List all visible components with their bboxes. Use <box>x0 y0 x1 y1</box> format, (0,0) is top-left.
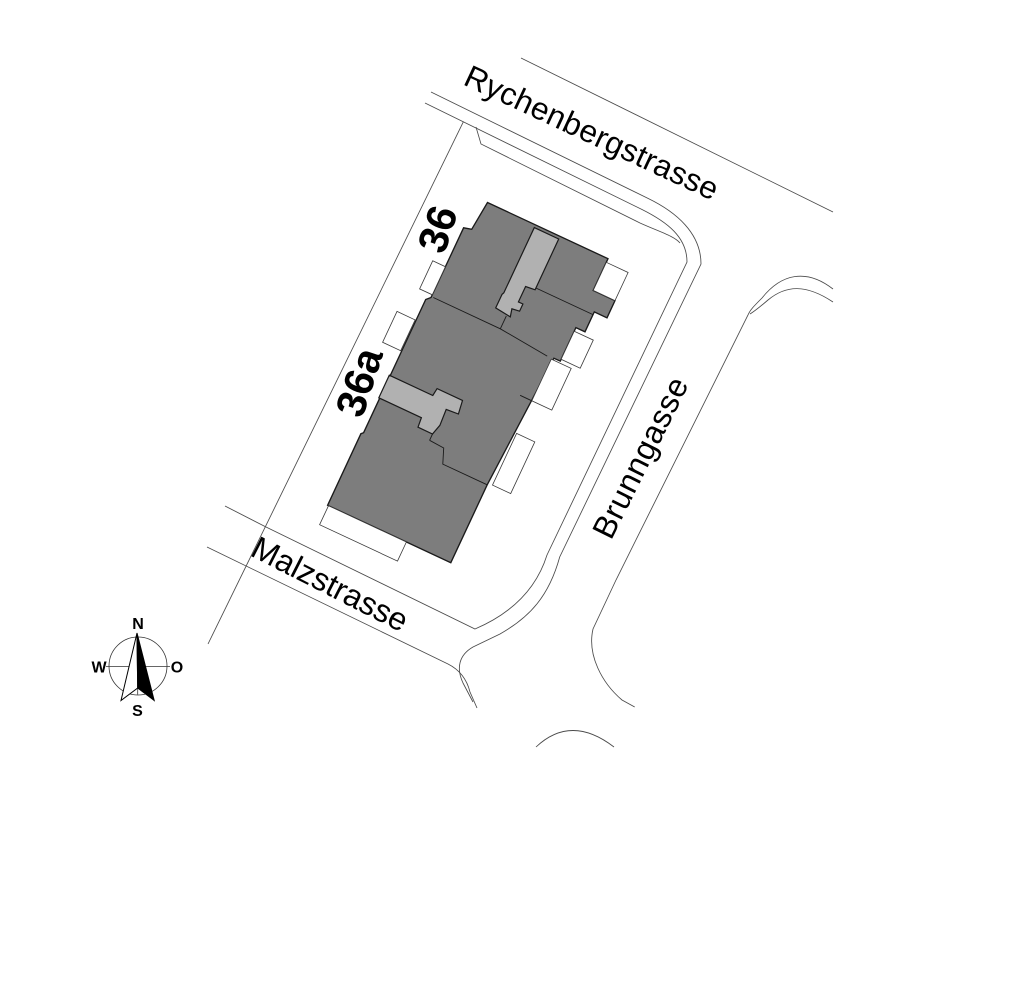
svg-text:N: N <box>132 616 144 633</box>
svg-text:W: W <box>91 660 107 677</box>
svg-text:O: O <box>171 660 183 677</box>
svg-text:S: S <box>132 703 143 720</box>
